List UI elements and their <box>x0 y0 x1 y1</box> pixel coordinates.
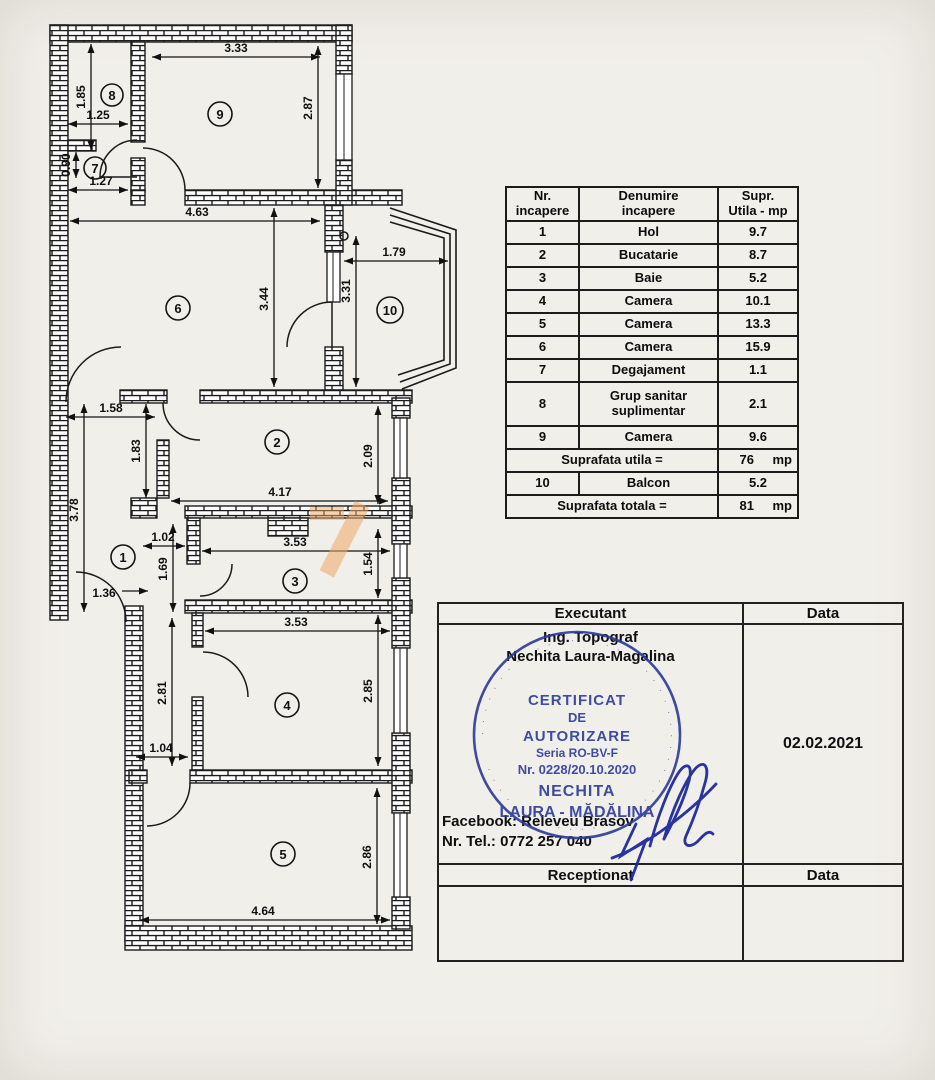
data-header: Data <box>744 604 902 625</box>
dim-label: 2.81 <box>155 681 169 705</box>
window <box>394 418 407 478</box>
data-header-2: Data <box>744 865 902 887</box>
svg-text:6: 6 <box>174 301 181 316</box>
door-arc <box>66 347 121 402</box>
summary-totala-row: Suprafata totala = 81mp <box>506 495 798 518</box>
dim-label: 1.58 <box>99 401 123 415</box>
col-header-nr: Nr.incapere <box>506 187 579 221</box>
door-arc <box>163 403 200 440</box>
room-number: 5 <box>271 842 295 866</box>
table-header-row: Nr.incapere Denumireincapere Supr.Utila … <box>506 187 798 221</box>
table-row: 2Bucatarie8.7 <box>506 244 798 267</box>
executant-role: Ing. Topograf <box>439 629 742 646</box>
dim-label: 1.36 <box>92 586 116 600</box>
dim-label: 1.25 <box>86 108 110 122</box>
summary-utila-label: Suprafata utila = <box>506 449 718 472</box>
dim-label: 1.04 <box>149 741 173 755</box>
table-row: 3Baie5.2 <box>506 267 798 290</box>
summary-totala-label: Suprafata totala = <box>506 495 718 518</box>
highlighter-stroke <box>310 507 344 520</box>
dim-label: 4.63 <box>185 205 209 219</box>
executant-table: Executant Data Ing. Topograf Nechita Lau… <box>437 602 904 962</box>
dim-label: 2.85 <box>361 679 375 703</box>
dim-label: 2.09 <box>361 444 375 468</box>
room-number: 10 <box>377 297 403 323</box>
svg-text:2: 2 <box>273 435 280 450</box>
balcony-outline <box>340 208 456 389</box>
date-cell: 02.02.2021 <box>744 625 902 865</box>
table-row: 8Grup sanitar suplimentar2.1 <box>506 382 798 426</box>
dim-label: 1.54 <box>361 552 375 576</box>
room-number: 4 <box>275 693 299 717</box>
window <box>394 813 407 897</box>
dim-label: 3.31 <box>339 279 353 303</box>
dim-label: 0.90 <box>59 153 73 177</box>
receptionat-header: Receptionat <box>439 865 744 887</box>
dim-label: 1.85 <box>74 85 88 109</box>
svg-text:7: 7 <box>91 161 98 176</box>
dim-label: 3.78 <box>67 498 81 522</box>
svg-text:1: 1 <box>119 550 126 565</box>
room-number: 8 <box>101 84 123 106</box>
dim-label: 1.02 <box>151 530 175 544</box>
data-empty-cell <box>744 887 902 960</box>
col-header-denumire: Denumireincapere <box>579 187 718 221</box>
door-arc <box>200 564 232 596</box>
table-row: 9Camera9.6 <box>506 426 798 449</box>
table-row: 5Camera13.3 <box>506 313 798 336</box>
room-number: 1 <box>111 545 135 569</box>
dimensions-group: 3.33 1.25 1.27 4.63 1.79 1.58 4.17 1.02 … <box>59 41 448 924</box>
svg-text:8: 8 <box>108 88 115 103</box>
dim-label: 4.17 <box>268 485 292 499</box>
svg-text:4: 4 <box>283 698 291 713</box>
scanned-floor-plan-page: { "rooms_table": { "col1_l1": "Nr.", "co… <box>0 0 935 1080</box>
receptionat-empty-cell <box>439 887 744 960</box>
room-number: 3 <box>283 569 307 593</box>
dim-label: 3.53 <box>283 535 307 549</box>
door-arc <box>287 302 332 347</box>
table-row: 1Hol9.7 <box>506 221 798 244</box>
summary-utila-row: Suprafata utila = 76mp <box>506 449 798 472</box>
executant-body-cell: Ing. Topograf Nechita Laura-Magalina Fac… <box>439 625 744 865</box>
room-areas-table: Nr.incapere Denumireincapere Supr.Utila … <box>505 186 799 519</box>
table-row: 6Camera15.9 <box>506 336 798 359</box>
svg-text:5: 5 <box>279 847 286 862</box>
dim-label: 1.79 <box>382 245 406 259</box>
dim-label: 2.86 <box>360 845 374 869</box>
executant-name: Nechita Laura-Magalina <box>439 648 742 665</box>
summary-totala-value: 81mp <box>718 495 798 518</box>
dim-label: 1.83 <box>129 439 143 463</box>
dim-label: 3.33 <box>224 41 248 55</box>
svg-text:10: 10 <box>383 303 397 318</box>
door-arc <box>143 148 185 190</box>
room-number: 7 <box>84 157 106 179</box>
dim-label: 1.69 <box>156 557 170 581</box>
door-arc <box>147 783 190 826</box>
dim-label: 3.53 <box>284 615 308 629</box>
col-header-suprafata: Supr.Utila - mp <box>718 187 798 221</box>
door-arc <box>203 652 248 697</box>
svg-text:9: 9 <box>216 107 223 122</box>
svg-text:3: 3 <box>291 574 298 589</box>
room-number: 9 <box>208 102 232 126</box>
summary-utila-value: 76mp <box>718 449 798 472</box>
window <box>336 74 352 160</box>
table-row: 7Degajament1.1 <box>506 359 798 382</box>
phone-line: Nr. Tel.: 0772 257 040 <box>442 833 592 850</box>
dim-label: 4.64 <box>251 904 275 918</box>
executant-header: Executant <box>439 604 744 625</box>
room-number: 2 <box>265 430 289 454</box>
dim-label: 3.44 <box>257 287 271 311</box>
table-row-balcon: 10Balcon5.2 <box>506 472 798 495</box>
facebook-line: Facebook: Releveu Brasov <box>442 813 634 830</box>
window <box>394 544 407 578</box>
dim-label: 1.27 <box>89 174 113 188</box>
table-row: 4Camera10.1 <box>506 290 798 313</box>
window <box>394 648 407 733</box>
room-number: 6 <box>166 296 190 320</box>
dim-label: 2.87 <box>301 96 315 120</box>
